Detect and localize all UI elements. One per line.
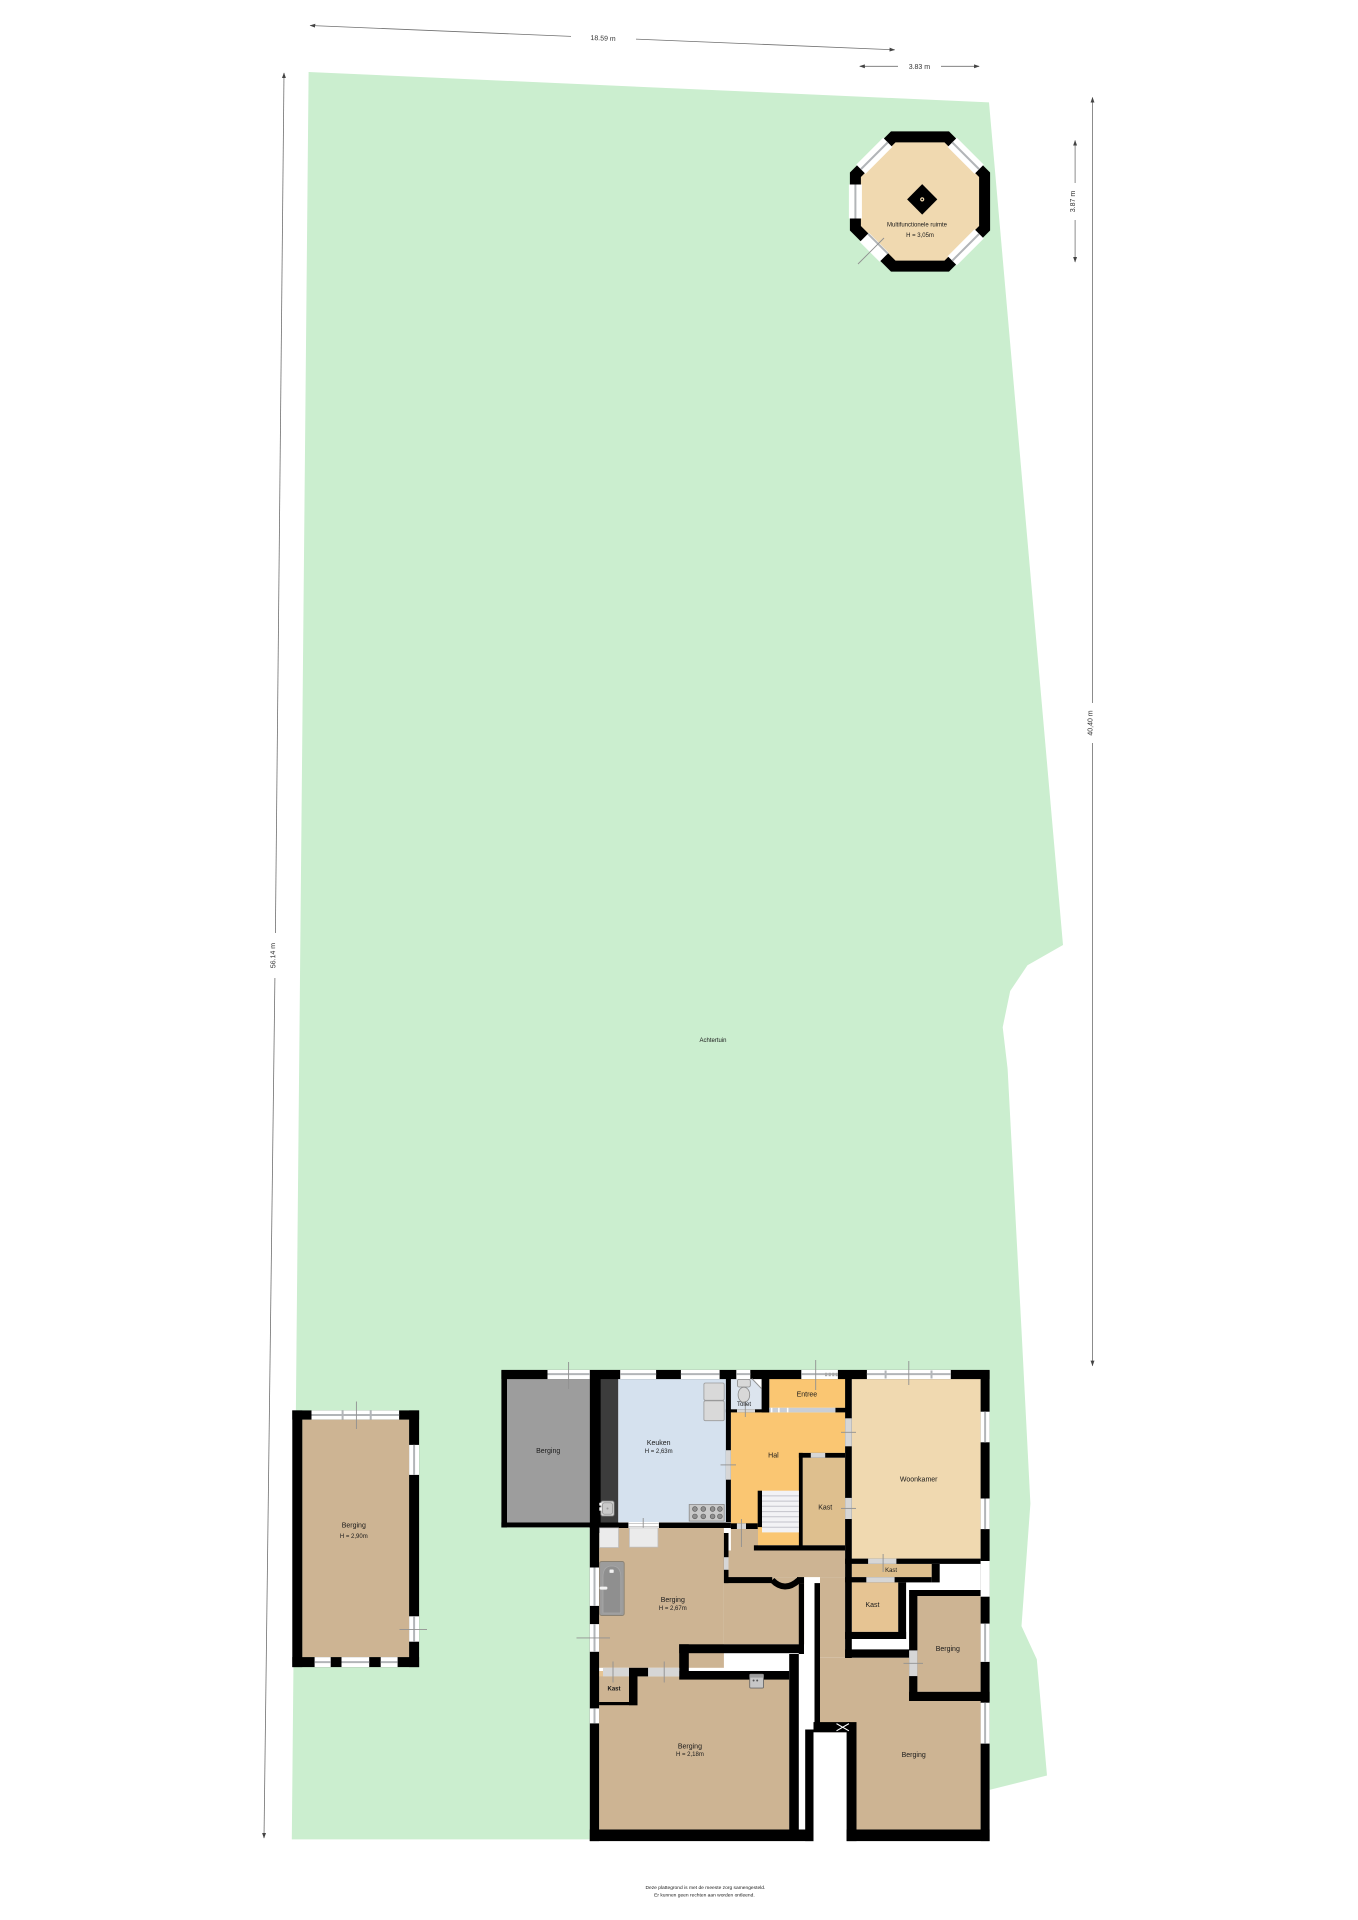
- svg-text:H = 2,90m: H = 2,90m: [340, 1534, 368, 1540]
- svg-text:Kast: Kast: [885, 1568, 897, 1574]
- svg-text:Kast: Kast: [607, 1687, 620, 1693]
- svg-text:Berging: Berging: [902, 1752, 926, 1759]
- svg-text:Achtertuin: Achtertuin: [699, 1038, 726, 1044]
- svg-text:3.87 m: 3.87 m: [1070, 191, 1077, 213]
- svg-text:H = 2,67m: H = 2,67m: [659, 1606, 687, 1612]
- svg-text:Kast: Kast: [865, 1602, 879, 1609]
- svg-text:Toilet: Toilet: [737, 1402, 751, 1408]
- svg-text:Berging: Berging: [661, 1597, 685, 1604]
- svg-text:H = 2,63m: H = 2,63m: [645, 1449, 673, 1455]
- svg-text:Deze plattegrond is met de mee: Deze plattegrond is met de meeste zorg s…: [645, 1885, 765, 1891]
- svg-text:18.59 m: 18.59 m: [590, 35, 616, 43]
- svg-text:Woonkamer: Woonkamer: [900, 1477, 938, 1484]
- svg-text:H = 2,18m: H = 2,18m: [676, 1752, 704, 1758]
- svg-text:Berging: Berging: [342, 1523, 366, 1530]
- svg-text:H = 3,05m: H = 3,05m: [906, 233, 934, 239]
- svg-text:56.14 m: 56.14 m: [270, 943, 277, 969]
- svg-text:3.83 m: 3.83 m: [909, 64, 931, 71]
- svg-text:Berging: Berging: [936, 1646, 960, 1653]
- svg-text:Berging: Berging: [536, 1448, 560, 1455]
- svg-text:Berging: Berging: [678, 1743, 702, 1750]
- svg-text:40,40 m: 40,40 m: [1088, 710, 1095, 735]
- svg-text:Entree: Entree: [797, 1391, 818, 1398]
- svg-text:Er kunnen geen rechten aan wor: Er kunnen geen rechten aan worden ontlee…: [654, 1892, 755, 1898]
- svg-text:Multifunctionele ruimte: Multifunctionele ruimte: [887, 223, 948, 229]
- svg-text:Hal: Hal: [768, 1453, 779, 1460]
- svg-text:Kast: Kast: [818, 1505, 832, 1512]
- svg-text:Keuken: Keuken: [647, 1440, 671, 1447]
